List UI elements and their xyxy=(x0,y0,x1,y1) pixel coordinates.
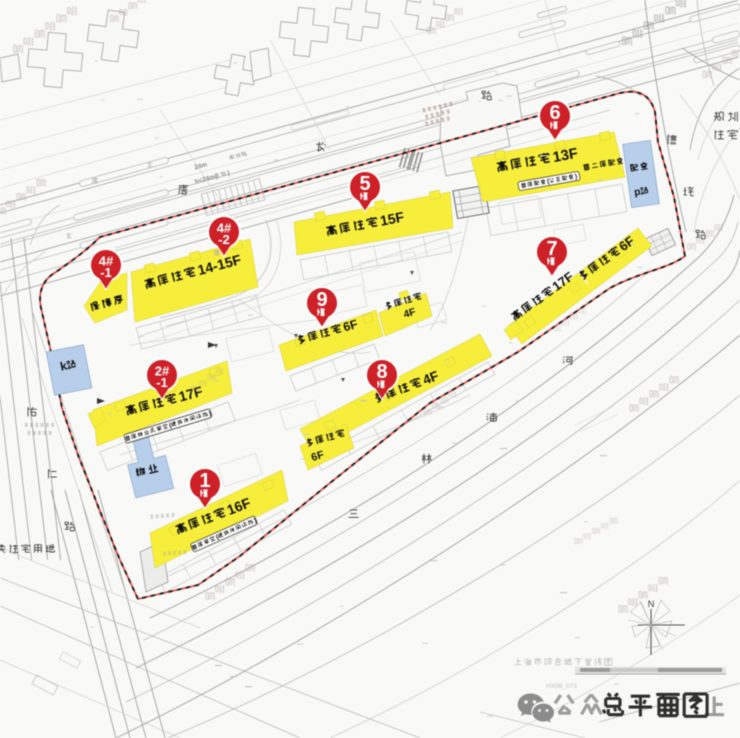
svg-text:HX08_073: HX08_073 xyxy=(546,683,577,690)
svg-text:6: 6 xyxy=(549,102,560,124)
svg-text:N: N xyxy=(648,599,655,610)
svg-text:7: 7 xyxy=(546,238,557,260)
svg-text:-2: -2 xyxy=(218,232,230,247)
svg-text:-1: -1 xyxy=(156,375,168,390)
svg-text:8: 8 xyxy=(376,361,387,383)
svg-text:9: 9 xyxy=(316,289,327,311)
svg-text:-1: -1 xyxy=(100,265,112,280)
svg-text:5: 5 xyxy=(359,173,370,195)
svg-text:1: 1 xyxy=(199,470,210,492)
